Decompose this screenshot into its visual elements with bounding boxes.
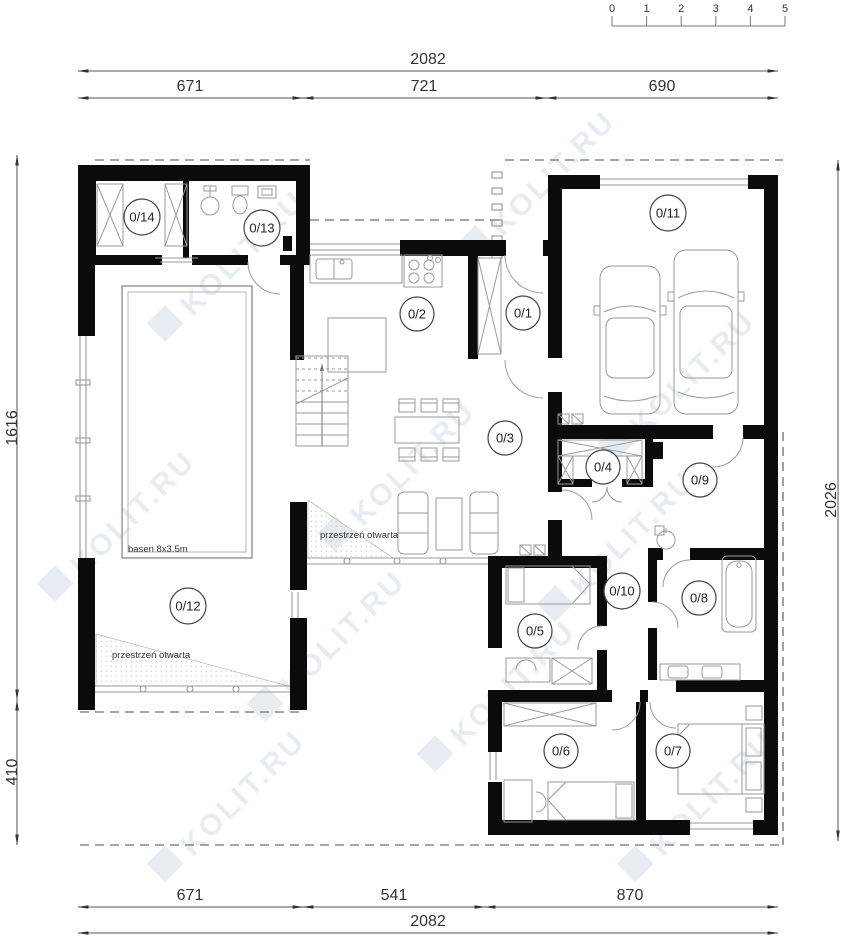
kitchen-sink-icon: [316, 259, 352, 279]
stairs: [296, 356, 348, 446]
dim-left-upper: 1616: [4, 410, 21, 446]
dim-bottom-seg-1: 671: [177, 887, 204, 904]
room-label-0-1: 0/1: [506, 296, 540, 330]
room-label-0-2: 0/2: [400, 297, 434, 331]
door-0-6: [612, 702, 640, 730]
pool-label: basen 8x3.5m: [128, 544, 188, 555]
sofa: [398, 492, 498, 554]
dim-top-seg-3: 690: [649, 78, 676, 95]
room-label-0-3: 0/3: [488, 421, 522, 455]
watermark-logo: [37, 565, 74, 602]
bed-icon: [548, 782, 634, 820]
door-0-7: [650, 702, 676, 728]
scale-tick-3: 3: [713, 3, 719, 15]
closet-icon: [504, 703, 596, 726]
room-id: 0/8: [690, 591, 708, 606]
room-label-0-5: 0/5: [518, 614, 552, 648]
entry-closet: [478, 258, 501, 354]
room-id: 0/11: [656, 206, 680, 221]
dim-bottom-seg-3: 870: [617, 887, 644, 904]
bathtub-icon: [722, 556, 756, 632]
room-label-0-4: 0/4: [586, 450, 620, 484]
open-space-label-left: przestrzeń otwarta: [112, 650, 191, 661]
door-0-8-side: [652, 602, 678, 628]
watermark-text: KOLIT.RU: [624, 304, 762, 442]
room-id: 0/4: [594, 460, 612, 475]
room-label-0-10: 0/10: [604, 573, 640, 609]
open-space-label-center: przestrzeń otwarta: [320, 530, 399, 541]
vanity-sinks: [660, 664, 740, 680]
dim-left-lower: 410: [4, 759, 21, 786]
room-label-0-11: 0/11: [650, 195, 686, 231]
dim-top-total: 2082: [410, 51, 446, 68]
door-garage-hall: [713, 437, 743, 467]
room-id: 0/10: [609, 584, 634, 599]
room-label-0-12: 0/12: [170, 588, 206, 624]
front-door: [505, 255, 543, 293]
kitchen-island: [328, 318, 386, 372]
coffee-table: [436, 498, 462, 550]
dim-bottom-total: 2082: [410, 913, 446, 930]
dim-right: 2026: [823, 482, 840, 518]
door-0-4-right: [607, 487, 622, 502]
watermark-logo: [147, 305, 184, 342]
door-0-8: [663, 560, 690, 587]
room-label-0-6: 0/6: [544, 734, 578, 768]
dim-top-seg-1: 671: [177, 78, 204, 95]
room-label-0-8: 0/8: [682, 581, 716, 615]
scale-tick-1: 1: [644, 3, 650, 15]
desk-icon: [504, 780, 546, 822]
dim-top-seg-2: 721: [411, 78, 438, 95]
room-id: 0/6: [552, 744, 570, 759]
watermark-text: KOLIT.RU: [444, 614, 582, 752]
room-label-0-14: 0/14: [124, 199, 160, 235]
stove-icon: [404, 255, 442, 287]
scale-tick-0: 0: [609, 3, 615, 15]
washbasin-icon: [258, 186, 276, 198]
wardrobe-icon: [552, 658, 592, 684]
toilet-icon: [232, 186, 248, 214]
room-id: 0/12: [175, 599, 200, 614]
room-id: 0/7: [664, 744, 682, 759]
watermark-logo: [417, 735, 454, 772]
watermark-logo: [617, 845, 654, 882]
dim-bottom-seg-2: 541: [381, 887, 408, 904]
floor-plan-page: KOLIT.RU KOLIT.RU KOLIT.RU KOLIT.RU KOLI…: [0, 0, 849, 940]
room-label-0-9: 0/9: [683, 463, 717, 497]
room-label-0-13: 0/13: [244, 210, 280, 246]
room-label-0-7: 0/7: [656, 734, 690, 768]
room-id: 0/1: [514, 306, 532, 321]
door-0-4-left: [592, 487, 607, 502]
scale-bar: 0 1 2 3 4 5: [609, 3, 788, 26]
scale-tick-5: 5: [782, 3, 788, 15]
door-entry-living: [505, 360, 543, 398]
room-id: 0/9: [691, 473, 709, 488]
room-id: 0/13: [249, 221, 274, 236]
room-id: 0/2: [408, 307, 426, 322]
door-0-5: [578, 626, 602, 650]
room-id: 0/5: [526, 624, 544, 639]
room-id: 0/3: [496, 431, 514, 446]
door-living-corridor: [562, 490, 592, 520]
scale-tick-4: 4: [747, 3, 753, 15]
watermark-logo: [247, 685, 284, 722]
floor-plan-drawing: KOLIT.RU KOLIT.RU KOLIT.RU KOLIT.RU KOLI…: [0, 0, 849, 940]
sink-icon: [201, 186, 219, 215]
room-id: 0/14: [129, 210, 154, 225]
watermark-logo: [147, 845, 184, 882]
watermark-text: KOLIT.RU: [174, 724, 312, 862]
scale-tick-2: 2: [678, 3, 684, 15]
